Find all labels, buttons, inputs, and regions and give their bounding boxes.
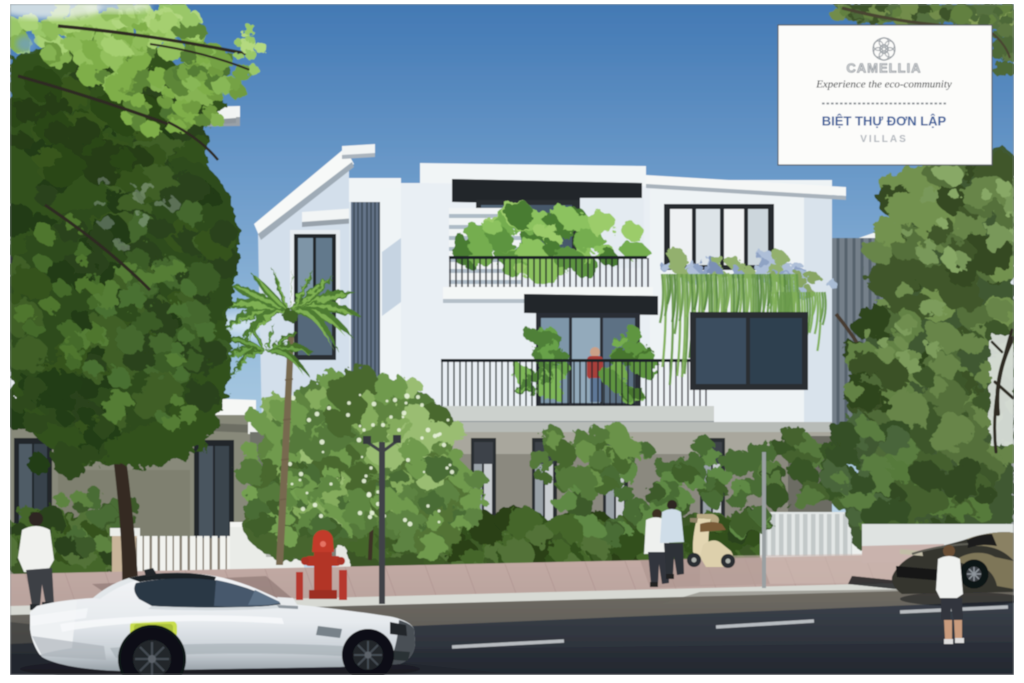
- svg-text:Experience the eco-community: Experience the eco-community: [815, 79, 952, 91]
- svg-text:VILLAS: VILLAS: [860, 134, 908, 145]
- svg-text:CAMELLIA: CAMELLIA: [846, 61, 921, 76]
- svg-text:BIỆT THỰ ĐƠN LẬP: BIỆT THỰ ĐƠN LẬP: [822, 114, 947, 129]
